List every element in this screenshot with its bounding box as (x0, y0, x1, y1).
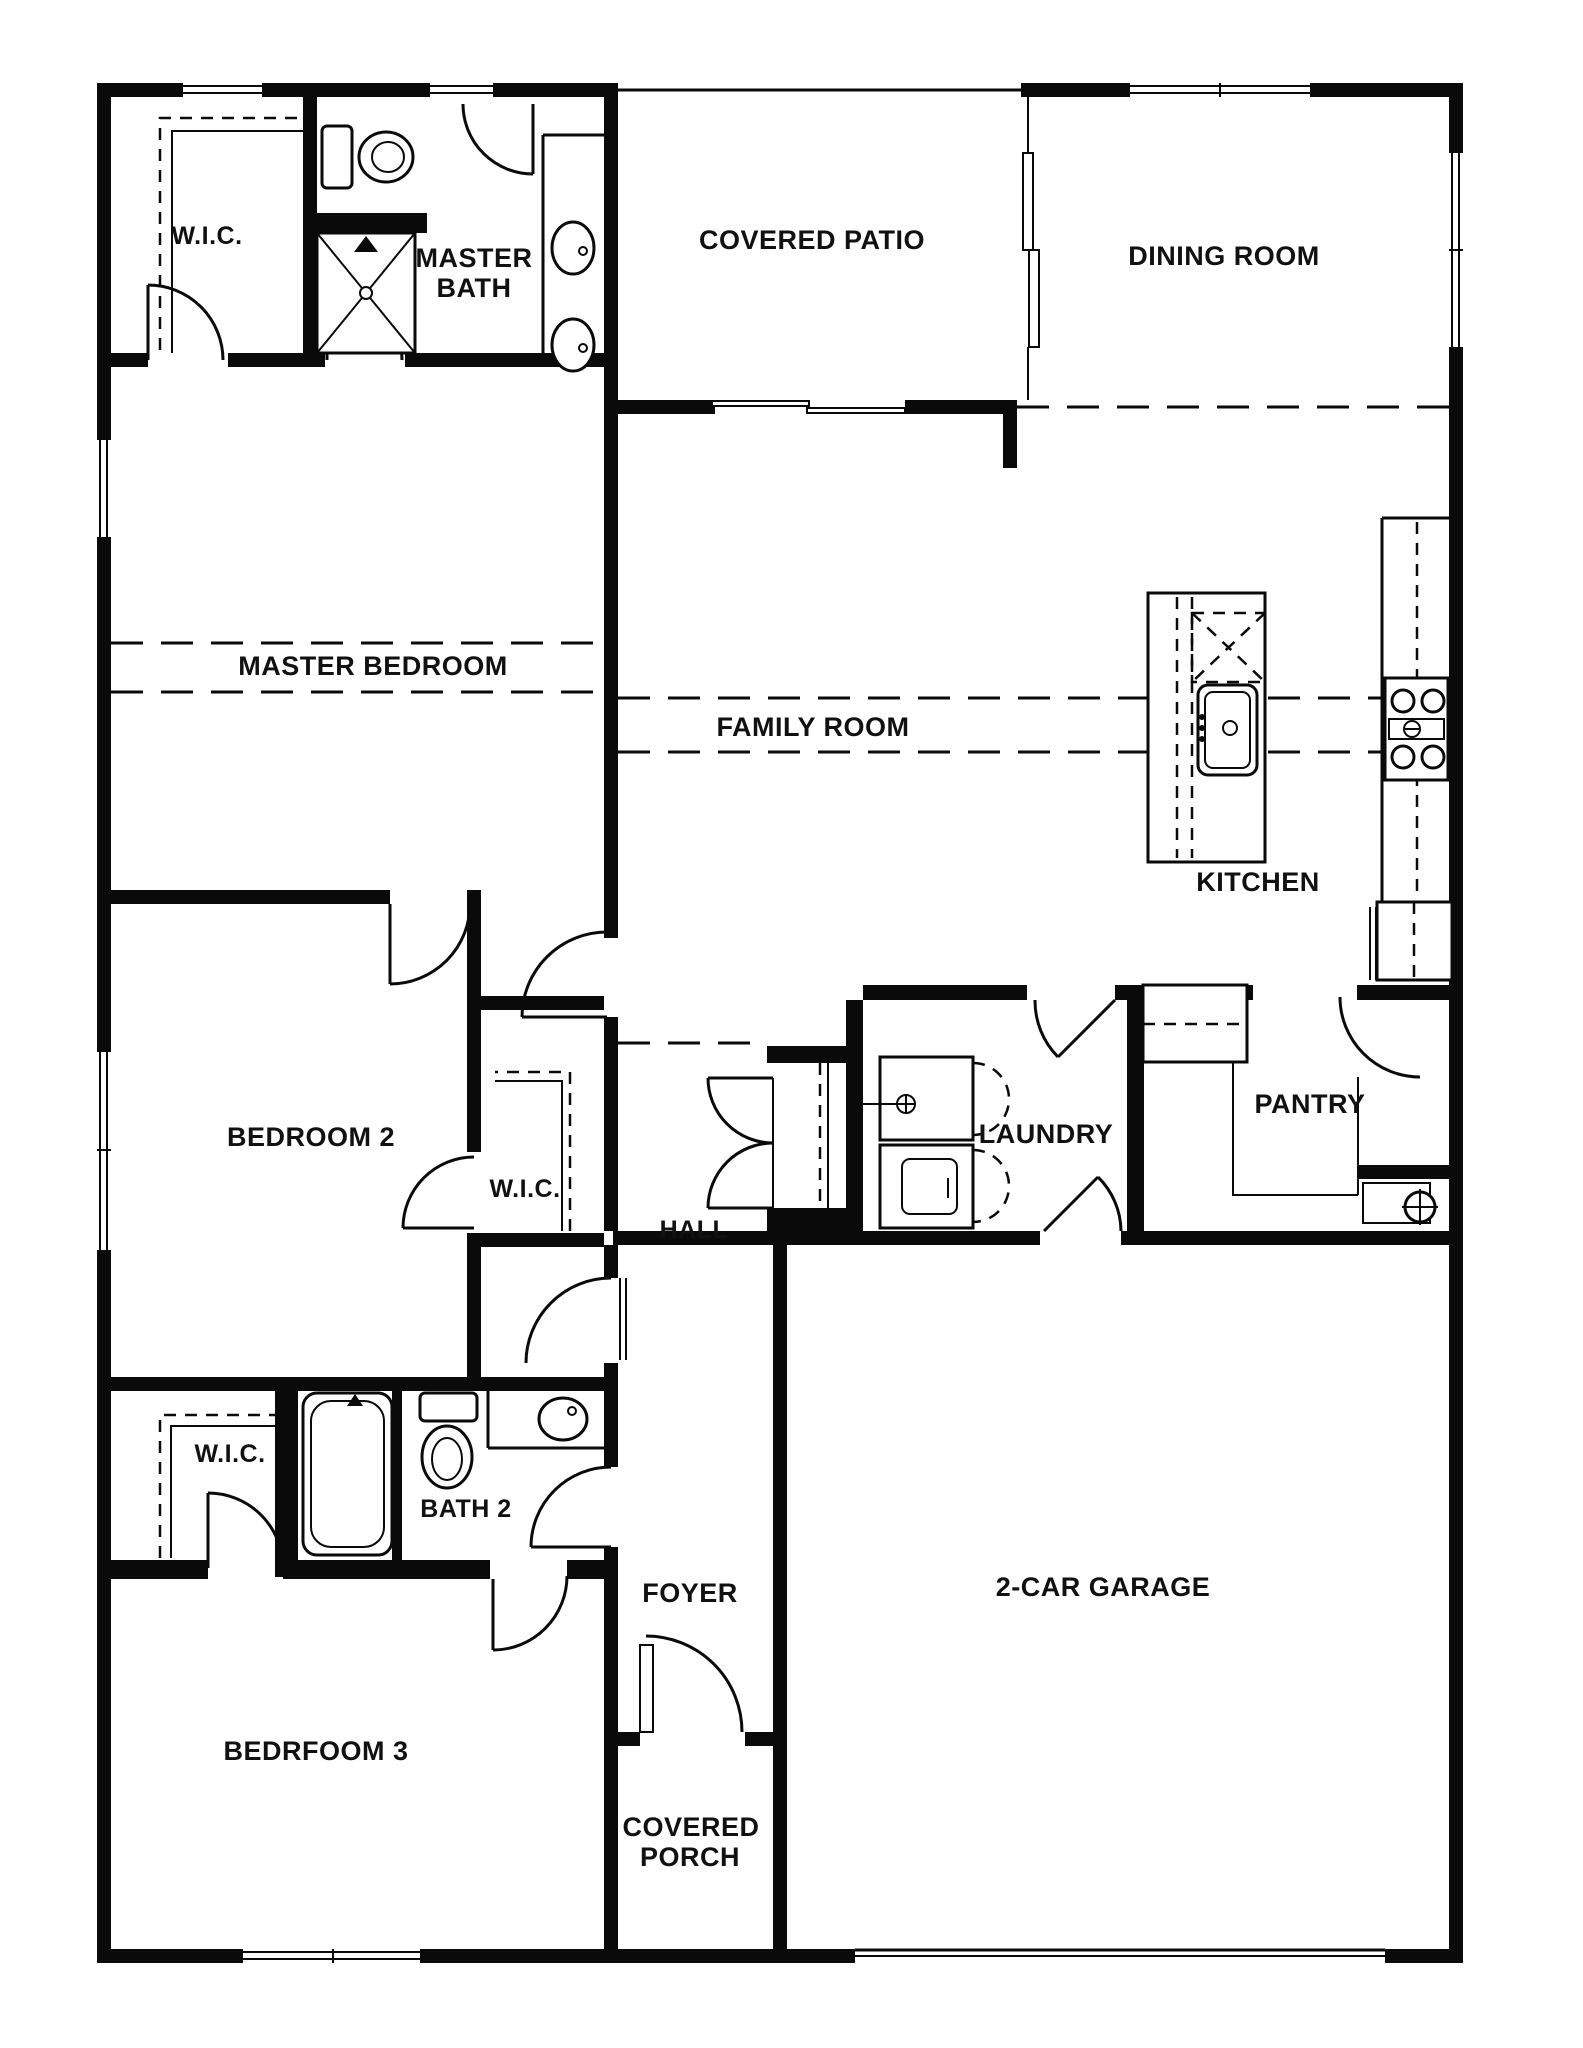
laundry-door (1035, 1000, 1115, 1057)
label-covered-porch-1: COVERED (622, 1812, 759, 1842)
master-bath-inner-door (463, 104, 533, 174)
bedroom2-door (390, 904, 470, 984)
floor-plan-drawing: W.I.C. MASTER BATH COVERED PATIO DINING … (0, 0, 1583, 2048)
window-master-bath (430, 83, 493, 97)
label-master-bath-1: MASTER (416, 243, 533, 273)
island-sink (1198, 685, 1257, 775)
patio-sliding-door (712, 401, 905, 413)
front-door (640, 1636, 742, 1732)
label-covered-porch-2: PORCH (640, 1842, 740, 1872)
window-bedroom3 (243, 1949, 420, 1963)
label-covered-patio: COVERED PATIO (699, 225, 925, 255)
water-heater-symbol (1363, 1183, 1438, 1225)
bath2-door (531, 1467, 611, 1547)
foyer-hall-door (526, 1278, 626, 1363)
cooktop-symbol (1385, 678, 1448, 780)
label-laundry: LAUNDRY (979, 1119, 1114, 1149)
dryer-symbol (880, 1145, 1009, 1228)
bathtub-symbol (303, 1393, 392, 1555)
window-wic-master (183, 83, 262, 97)
label-family-room: FAMILY ROOM (716, 712, 909, 742)
vanity-master (543, 135, 604, 371)
label-garage: 2-CAR GARAGE (996, 1572, 1211, 1602)
window-dining-right (1449, 153, 1463, 347)
garage-entry-door (1044, 1177, 1121, 1231)
label-wic-bedroom3: W.I.C. (194, 1440, 265, 1468)
window-dining-top (1130, 83, 1310, 97)
label-foyer: FOYER (642, 1578, 738, 1608)
bedroom2-wic-door (403, 1157, 474, 1228)
label-dining-room: DINING ROOM (1128, 241, 1320, 271)
label-wic-master: W.I.C. (171, 222, 242, 250)
label-wic-bedroom2: W.I.C. (489, 1175, 560, 1203)
label-pantry: PANTRY (1255, 1089, 1366, 1119)
floor-plan-page: W.I.C. MASTER BATH COVERED PATIO DINING … (0, 0, 1583, 2048)
dining-sliding-door (1023, 97, 1039, 400)
toilet-symbol-bath2 (420, 1393, 477, 1488)
vanity-bath2 (488, 1391, 604, 1448)
window-master-bedroom (97, 440, 111, 537)
garage-door-opening (855, 1950, 1385, 1956)
wic-bedroom3-door (208, 1493, 283, 1568)
label-kitchen: KITCHEN (1196, 867, 1320, 897)
toilet-symbol-master (322, 126, 413, 188)
label-bedroom-3: BEDRFOOM 3 (223, 1736, 408, 1766)
label-master-bedroom: MASTER BEDROOM (238, 651, 508, 681)
refrigerator-symbol (1377, 902, 1452, 980)
label-hall: HALL (660, 1216, 729, 1244)
label-bath-2: BATH 2 (420, 1495, 511, 1523)
window-bedroom2 (97, 1052, 111, 1250)
label-master-bath-2: BATH (437, 273, 512, 303)
shower-symbol (317, 233, 415, 353)
bedroom3-door (493, 1576, 567, 1650)
linen-closet-doors (708, 1078, 773, 1208)
kitchen-island (1148, 593, 1265, 862)
label-bedroom-2: BEDROOM 2 (227, 1122, 395, 1152)
freezer-symbol (1143, 985, 1247, 1062)
